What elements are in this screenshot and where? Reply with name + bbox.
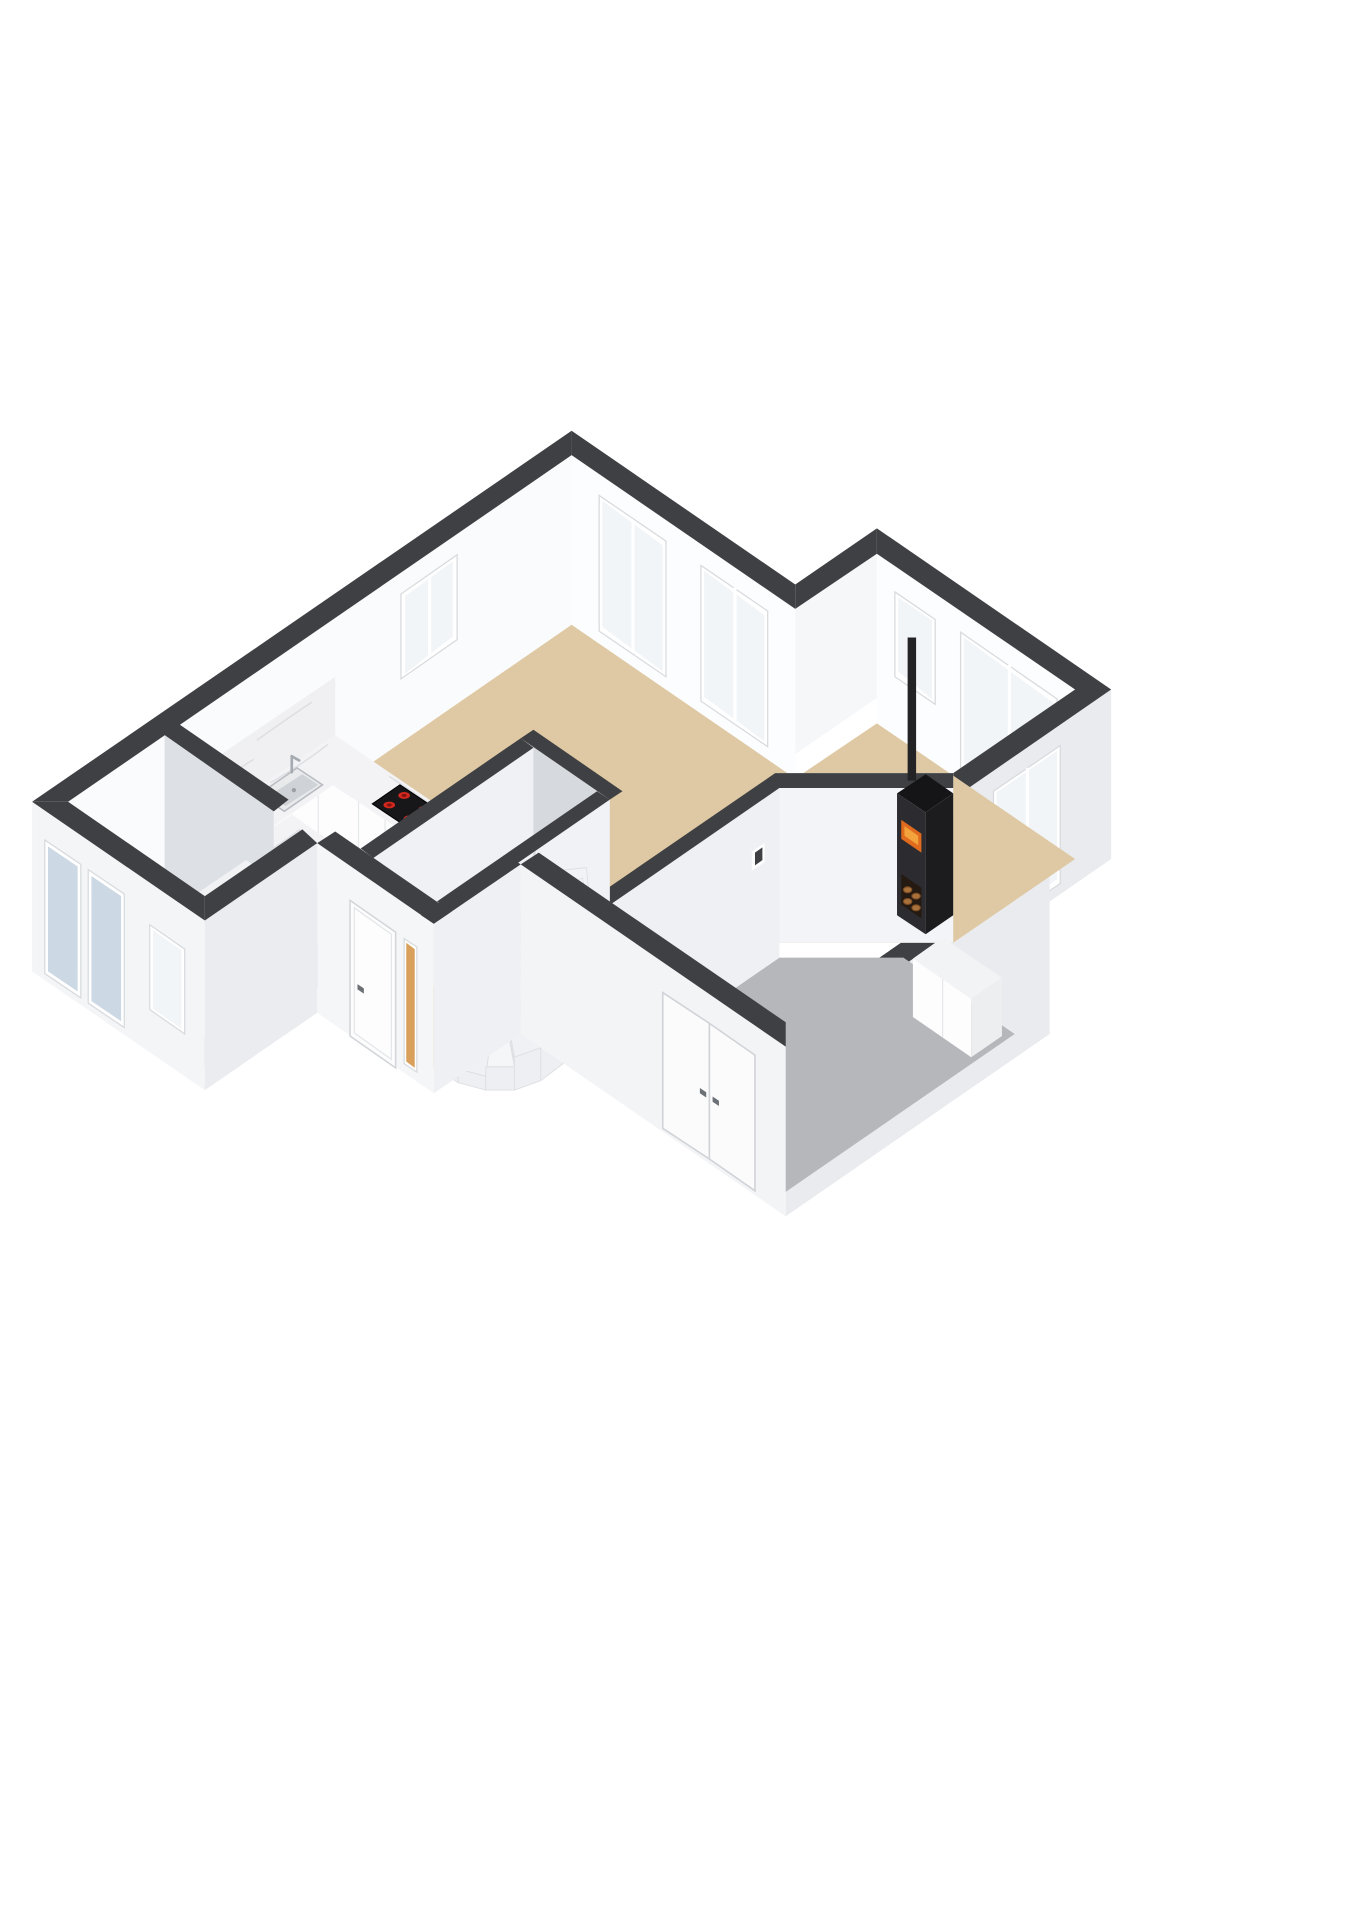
log — [912, 893, 920, 899]
patio-door-left — [45, 840, 81, 998]
log — [912, 905, 920, 911]
door-glazing — [48, 846, 78, 991]
floor-plan-page — [0, 0, 1358, 1920]
front-sidelight — [404, 939, 417, 1073]
door-glazing — [91, 876, 121, 1021]
log — [903, 887, 911, 893]
sidelight-glazing — [406, 943, 414, 1068]
building — [32, 431, 1111, 1216]
floor-plan-render — [0, 0, 1358, 1920]
stair-outer-face — [486, 1067, 515, 1090]
stove-side — [926, 793, 954, 934]
log — [903, 898, 911, 904]
burner-core — [387, 803, 392, 806]
sink-drain — [292, 788, 296, 792]
burner-core — [402, 794, 407, 797]
stove-chimney — [908, 637, 916, 780]
patio-door-right — [88, 870, 124, 1028]
